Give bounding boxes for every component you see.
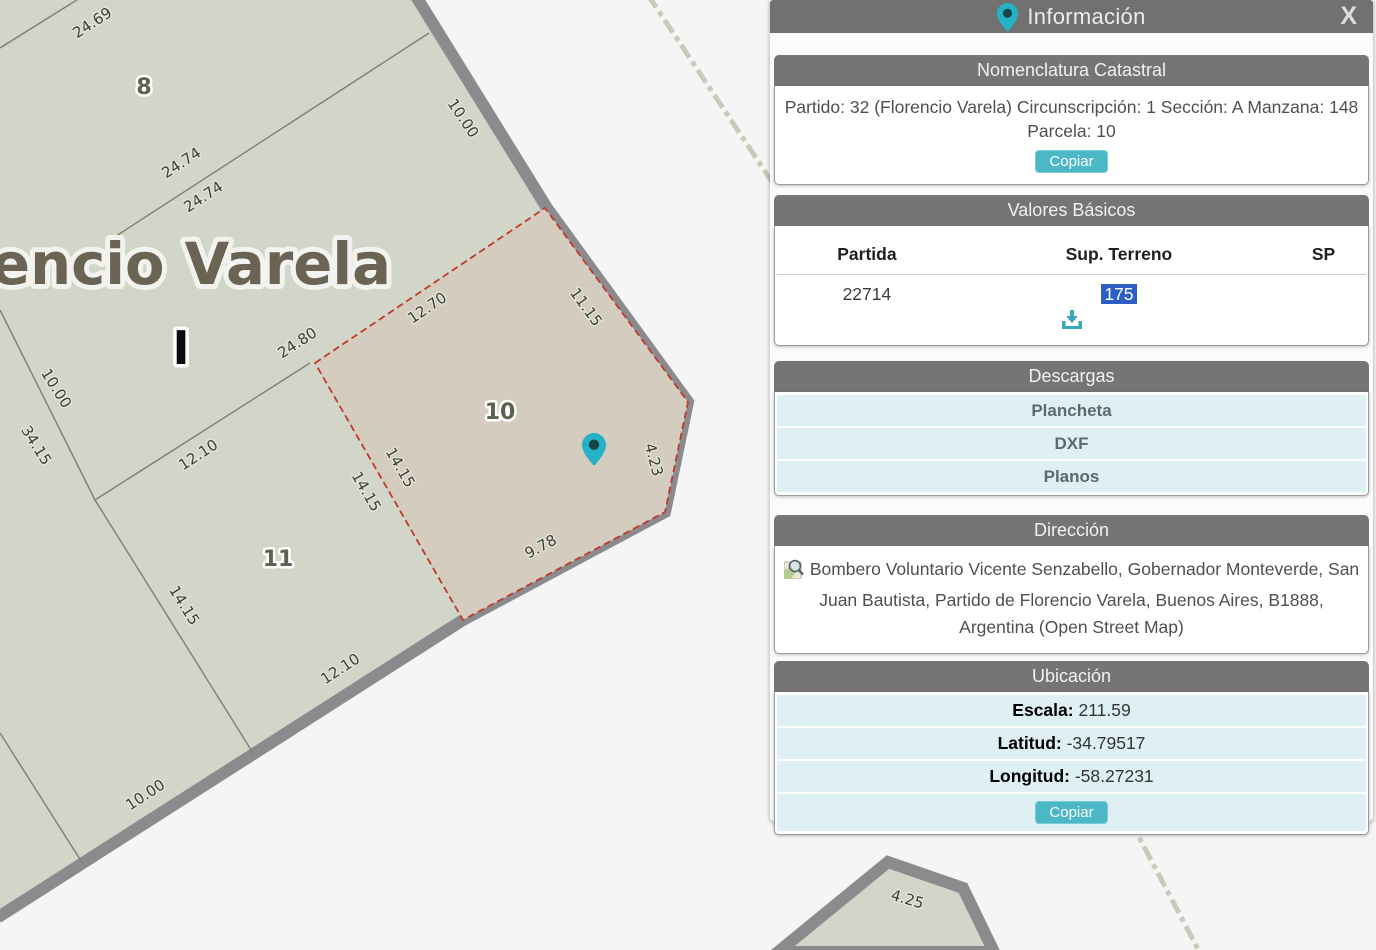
sp-value (1279, 284, 1368, 305)
valores-body: Partida Sup. Terreno SP 22714 175 (774, 226, 1369, 346)
panel-title: Información (1027, 4, 1145, 30)
download-icon[interactable] (1061, 310, 1083, 330)
map-magnifier-icon (784, 559, 804, 587)
table-row: 22714 175 (775, 275, 1368, 305)
column-header-sp: SP (1279, 244, 1368, 265)
cadastral-map-viewer: encio Varela I 8 10 11 24.69 10.00 24.74… (0, 0, 1376, 950)
section-marker: I (172, 321, 189, 375)
section-title: Ubicación (774, 661, 1369, 692)
latitude-row: Latitud: -34.79517 (777, 728, 1366, 759)
section-nomenclatura-catastral: Nomenclatura Catastral Partido: 32 (Flor… (774, 55, 1369, 185)
close-icon[interactable]: X (1340, 0, 1357, 33)
partida-value: 22714 (775, 284, 959, 305)
direccion-body: Bombero Voluntario Vicente Senzabello, G… (774, 546, 1369, 654)
copy-nomenclatura-button[interactable]: Copiar (1035, 150, 1107, 173)
map-pin-icon (997, 3, 1018, 31)
section-title: Dirección (774, 515, 1369, 546)
section-valores-basicos: Valores Básicos Partida Sup. Terreno SP … (774, 195, 1369, 346)
info-panel: Información X Nomenclatura Catastral Par… (770, 0, 1373, 822)
nomenclatura-body: Partido: 32 (Florencio Varela) Circunscr… (774, 86, 1369, 185)
download-link-plancheta[interactable]: Plancheta (777, 395, 1366, 426)
column-header-partida: Partida (775, 244, 959, 265)
parcel-number-10: 10 (485, 400, 516, 425)
sup-terreno-value: 175 (1101, 284, 1136, 304)
scale-row: Escala: 211.59 (777, 695, 1366, 726)
block-south[interactable] (778, 862, 994, 950)
info-panel-header: Información X (770, 0, 1373, 33)
copy-coordinates-button[interactable]: Copiar (1035, 801, 1107, 824)
download-link-planos[interactable]: Planos (777, 461, 1366, 492)
parcel-number-11: 11 (263, 547, 294, 572)
longitude-row: Longitud: -58.27231 (777, 761, 1366, 792)
descargas-body: Plancheta DXF Planos (774, 392, 1369, 496)
section-ubicacion: Ubicación Escala: 211.59 Latitud: -34.79… (774, 661, 1369, 835)
section-title: Nomenclatura Catastral (774, 55, 1369, 86)
dashed-boundary-line-top (648, 0, 772, 182)
nomenclatura-text: Partido: 32 (Florencio Varela) Circunscr… (775, 86, 1368, 147)
download-link-dxf[interactable]: DXF (777, 428, 1366, 459)
section-descargas: Descargas Plancheta DXF Planos (774, 361, 1369, 496)
ubicacion-body: Escala: 211.59 Latitud: -34.79517 Longit… (774, 692, 1369, 835)
section-direccion: Dirección Bombero Voluntario Vicente Sen… (774, 515, 1369, 654)
dashed-boundary-line-bottom (1130, 820, 1200, 950)
address-text: Bombero Voluntario Vicente Senzabello, G… (775, 546, 1368, 653)
region-title: encio Varela (0, 230, 391, 298)
section-title: Descargas (774, 361, 1369, 392)
parcel-number-8: 8 (136, 75, 151, 100)
column-header-sup-terreno: Sup. Terreno (959, 244, 1279, 265)
section-title: Valores Básicos (774, 195, 1369, 226)
